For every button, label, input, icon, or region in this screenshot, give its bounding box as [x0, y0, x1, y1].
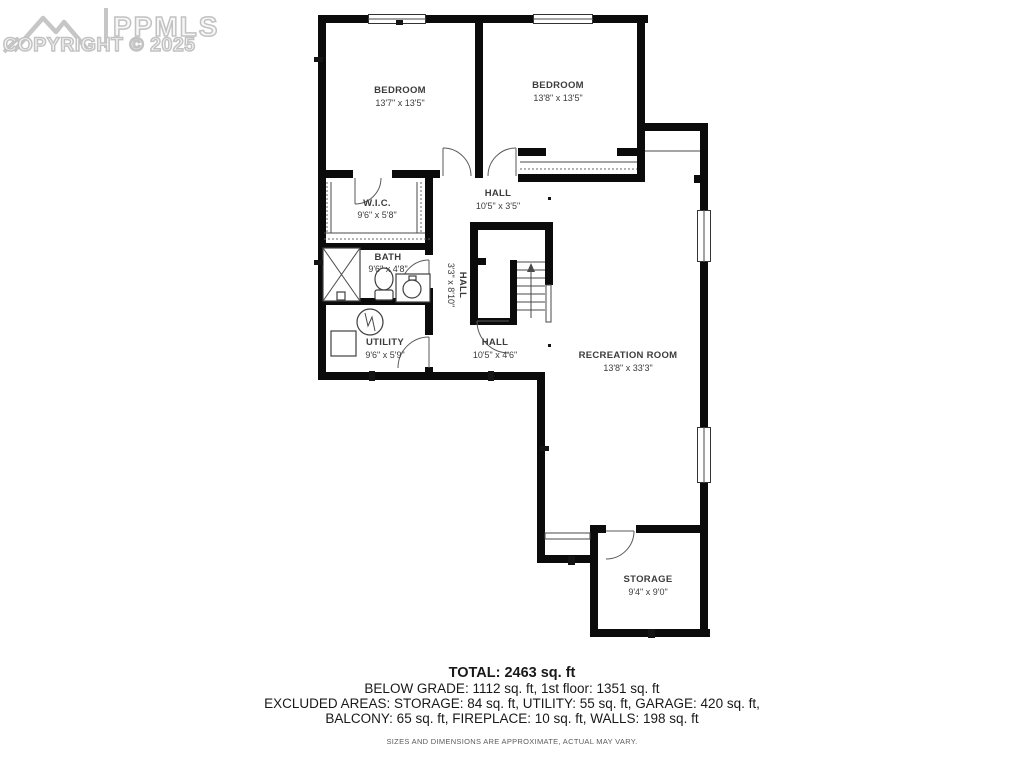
ledge-icon [545, 533, 590, 539]
total-area: TOTAL: 2463 sq. ft [0, 666, 1024, 681]
storage-door-icon [606, 531, 634, 559]
bedroom2-door-icon [488, 148, 516, 176]
summary-line-1: BELOW GRADE: 1112 sq. ft, 1st floor: 135… [0, 681, 1024, 696]
room-label-recreation: RECREATION ROOM [579, 350, 678, 361]
room-label-hall-lower: HALL [482, 337, 509, 348]
room-label-storage: STORAGE [624, 574, 673, 585]
room-label-hall-vertical: HALL 3'3" x 8'10" [446, 263, 468, 307]
room-dims-utility: 9'6" x 5'9" [365, 350, 404, 360]
sink-icon [396, 274, 430, 302]
summary-line-3: BALCONY: 65 sq. ft, FIREPLACE: 10 sq. ft… [0, 711, 1024, 726]
recreation-window-upper-icon [698, 210, 711, 262]
closet-rod-icon [520, 162, 637, 169]
room-label-wic: W.I.C. [363, 198, 391, 209]
svg-text:HALL: HALL [457, 272, 468, 299]
room-dims-storage: 9'4" x 9'0" [628, 587, 667, 597]
room-dims-hall-top: 10'5" x 3'5" [476, 201, 520, 211]
room-label-utility: UTILITY [366, 337, 404, 348]
room-label-hall-top: HALL [485, 188, 512, 199]
disclaimer: SIZES AND DIMENSIONS ARE APPROXIMATE, AC… [0, 737, 1024, 746]
floorplan-page: PPMLS COPYRIGHT © 2025 [0, 0, 1024, 767]
bedroom2-window-icon [533, 15, 593, 24]
room-label-bath: BATH [375, 252, 402, 263]
floor-plan: BEDROOM 13'7" x 13'5" BEDROOM 13'8" x 13… [0, 0, 1024, 660]
room-dims-bedroom1: 13'7" x 13'5" [375, 98, 424, 108]
room-dims-bedroom2: 13'8" x 13'5" [533, 93, 582, 103]
furnace-icon [331, 331, 356, 356]
room-dims-wic: 9'6" x 5'8" [357, 210, 396, 220]
shower-icon [323, 248, 360, 301]
recreation-window-lower-icon [698, 427, 711, 483]
room-labels: BEDROOM 13'7" x 13'5" BEDROOM 13'8" x 13… [357, 80, 677, 597]
area-summary: TOTAL: 2463 sq. ft BELOW GRADE: 1112 sq.… [0, 666, 1024, 746]
room-label-bedroom1: BEDROOM [374, 85, 426, 96]
room-dims-hall-lower: 10'5" x 4'6" [473, 350, 517, 360]
room-dims-bath: 9'6" x 4'8" [368, 264, 407, 274]
water-heater-icon [357, 309, 383, 335]
summary-line-2: EXCLUDED AREAS: STORAGE: 84 sq. ft, UTIL… [0, 696, 1024, 711]
room-label-bedroom2: BEDROOM [532, 80, 584, 91]
bedroom1-door-icon [443, 148, 471, 176]
svg-text:3'3" x 8'10": 3'3" x 8'10" [446, 263, 456, 307]
room-dims-recreation: 13'8" x 33'3" [603, 363, 652, 373]
